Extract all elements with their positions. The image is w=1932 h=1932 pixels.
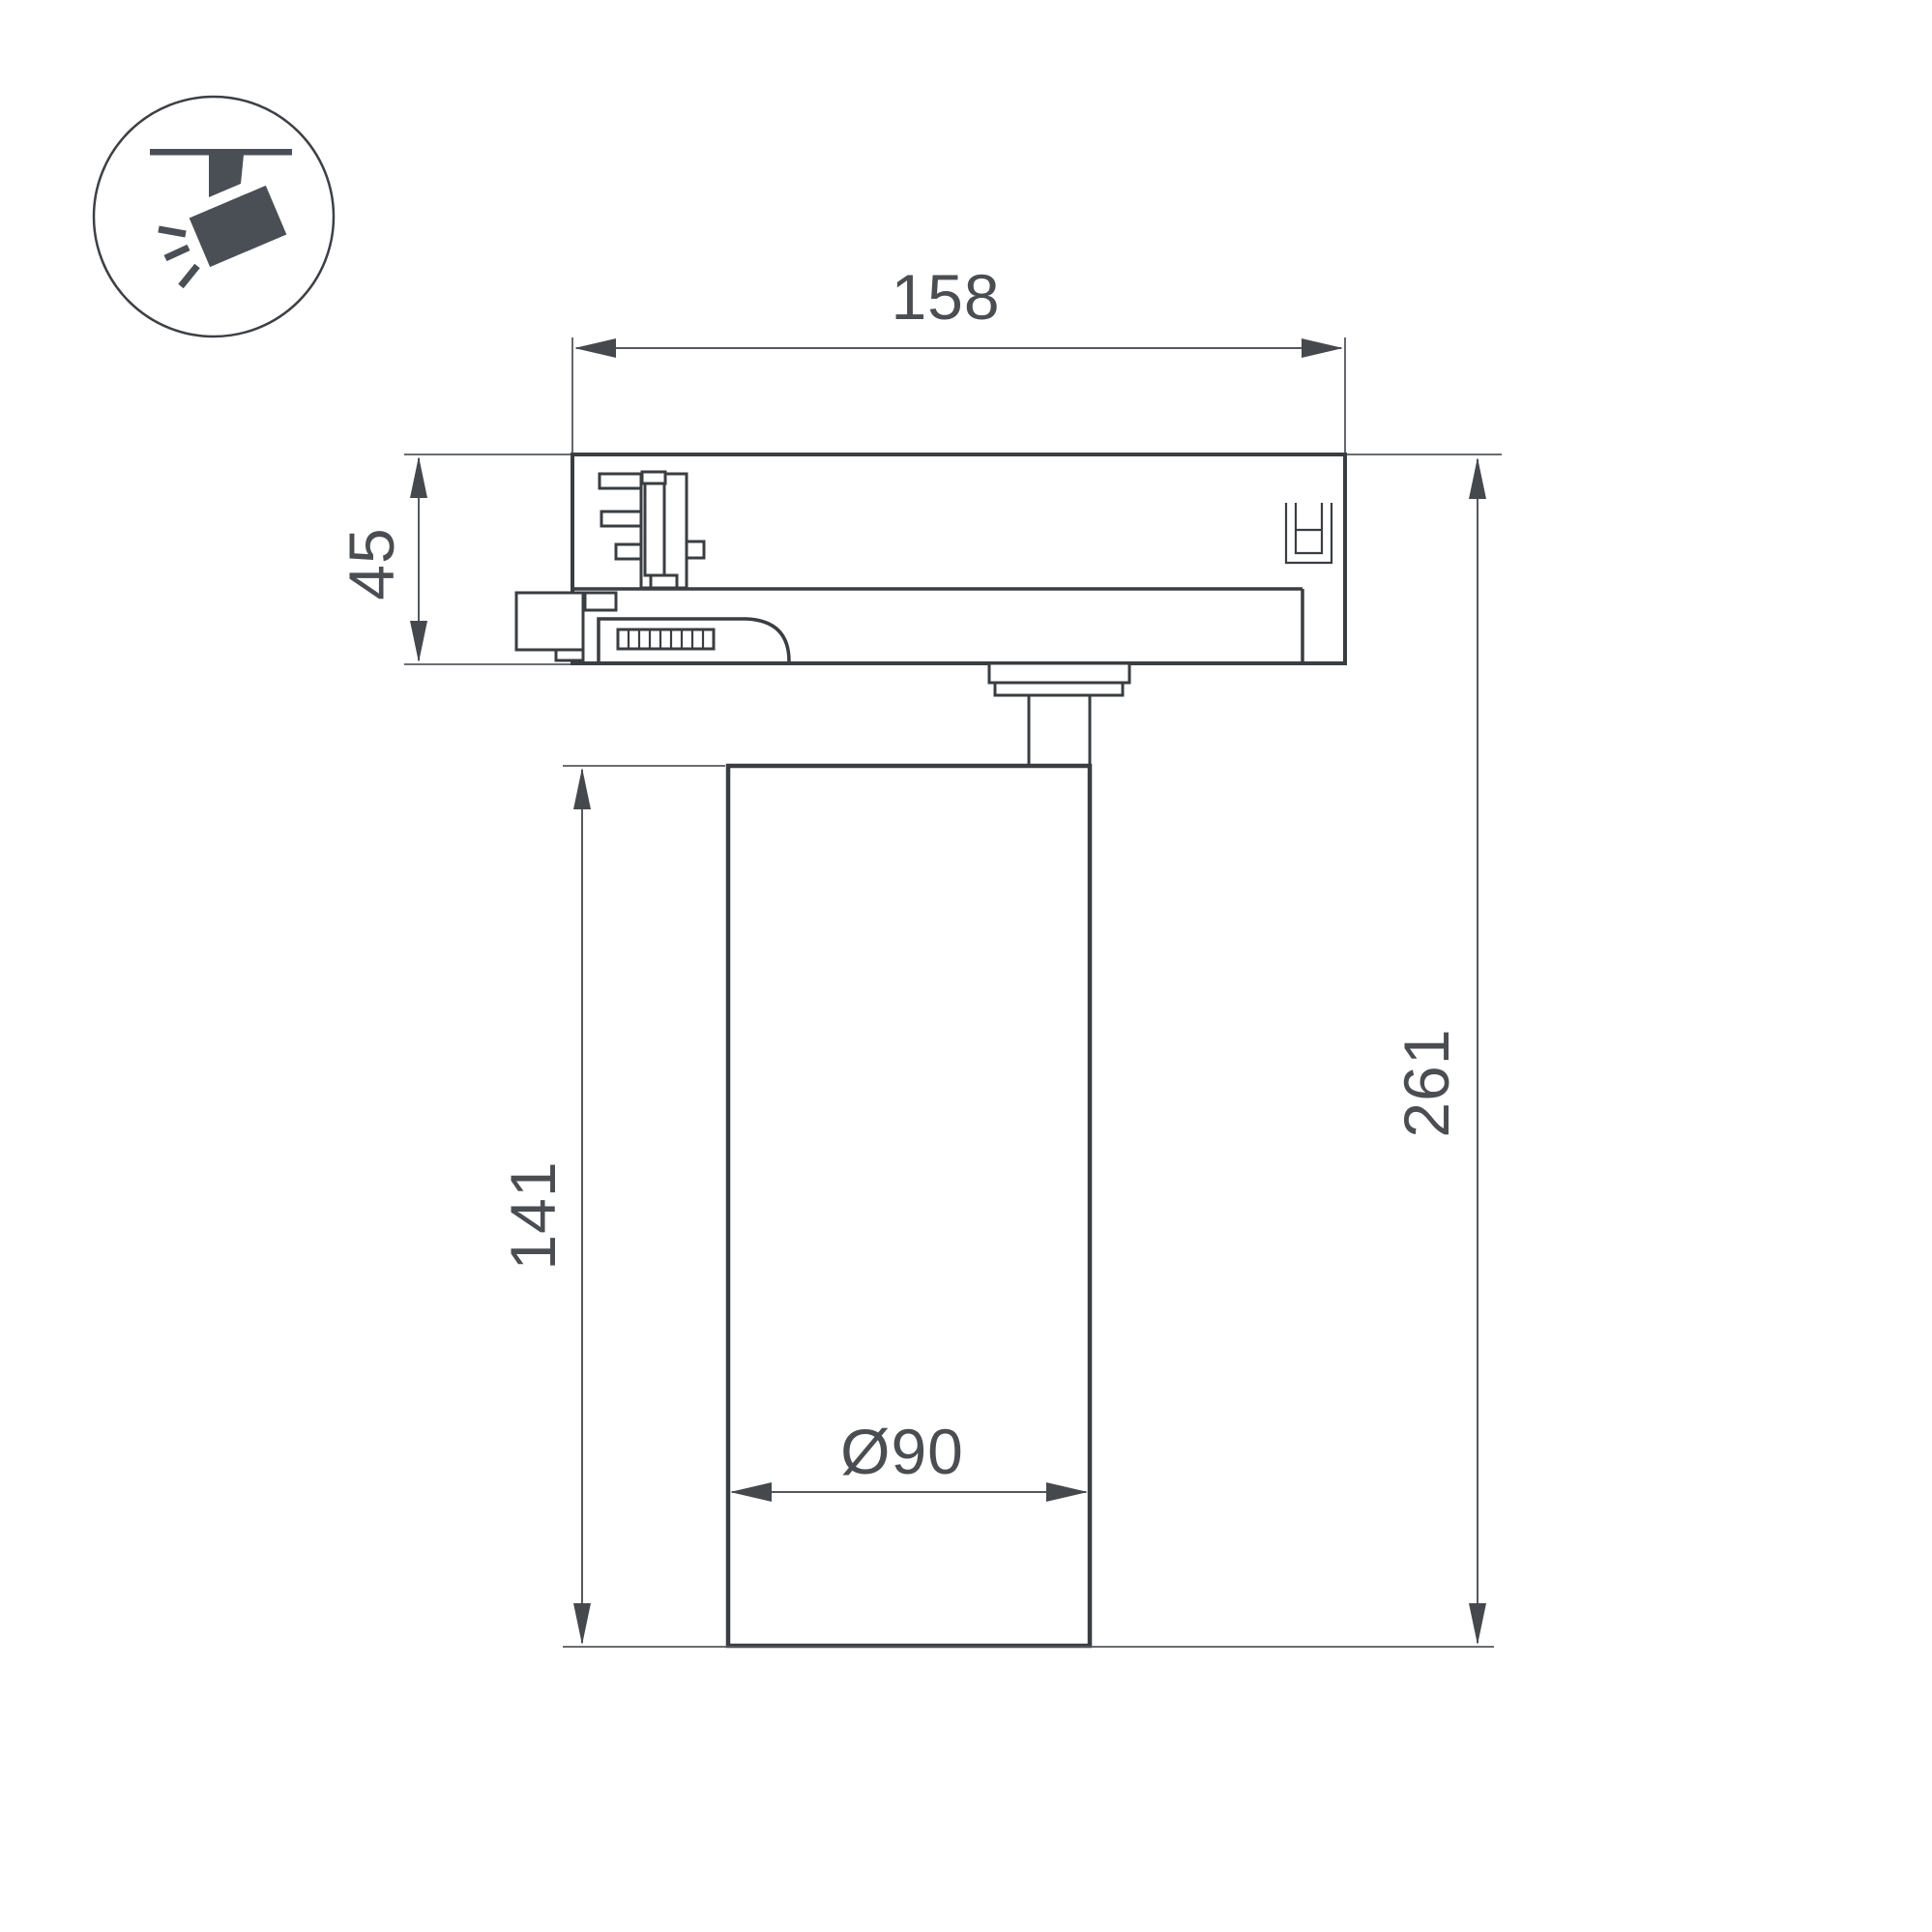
neck-flange-upper xyxy=(989,663,1129,683)
arrow-up xyxy=(573,768,591,809)
contact-pin-cap xyxy=(642,472,665,483)
latch-lever xyxy=(516,593,583,650)
neck-flange-lower xyxy=(995,683,1123,695)
dim-label-body-diameter: Ø90 xyxy=(840,1420,964,1483)
dim-label-total-height: 261 xyxy=(1394,1028,1458,1137)
dim-label-width-top: 158 xyxy=(891,265,1000,329)
contact-prong-middle xyxy=(601,512,641,526)
arrow-left xyxy=(574,338,616,358)
track-spotlight-icon xyxy=(94,97,334,337)
dim-158 xyxy=(572,337,1345,453)
contact-pin xyxy=(645,483,664,575)
dim-label-body-height: 141 xyxy=(501,1160,565,1270)
lamp-body xyxy=(728,766,1090,1646)
arrow-down xyxy=(1469,1603,1486,1645)
arrow-right xyxy=(1302,338,1343,358)
dimension-drawing-page: 158 45 141 261 Ø90 xyxy=(0,0,1932,1932)
contact-prong-right xyxy=(687,542,704,558)
arrow-down xyxy=(573,1603,591,1645)
icon-track-bar xyxy=(150,149,292,156)
track-adapter xyxy=(516,454,1345,766)
contact-prong-top xyxy=(600,474,641,488)
contact-prong-bottom xyxy=(616,544,641,559)
neck-stem xyxy=(1029,695,1090,766)
dim-label-adapter-height: 45 xyxy=(339,527,403,600)
arrow-up xyxy=(1469,457,1486,499)
arrow-down xyxy=(410,621,427,662)
dim-141 xyxy=(563,766,725,1645)
contact-pin-foot xyxy=(651,575,677,588)
dial-window xyxy=(618,629,714,649)
latch-bracket xyxy=(585,593,616,610)
arrow-up xyxy=(410,456,427,498)
latch-step xyxy=(556,650,583,660)
swivel-neck xyxy=(989,663,1129,766)
